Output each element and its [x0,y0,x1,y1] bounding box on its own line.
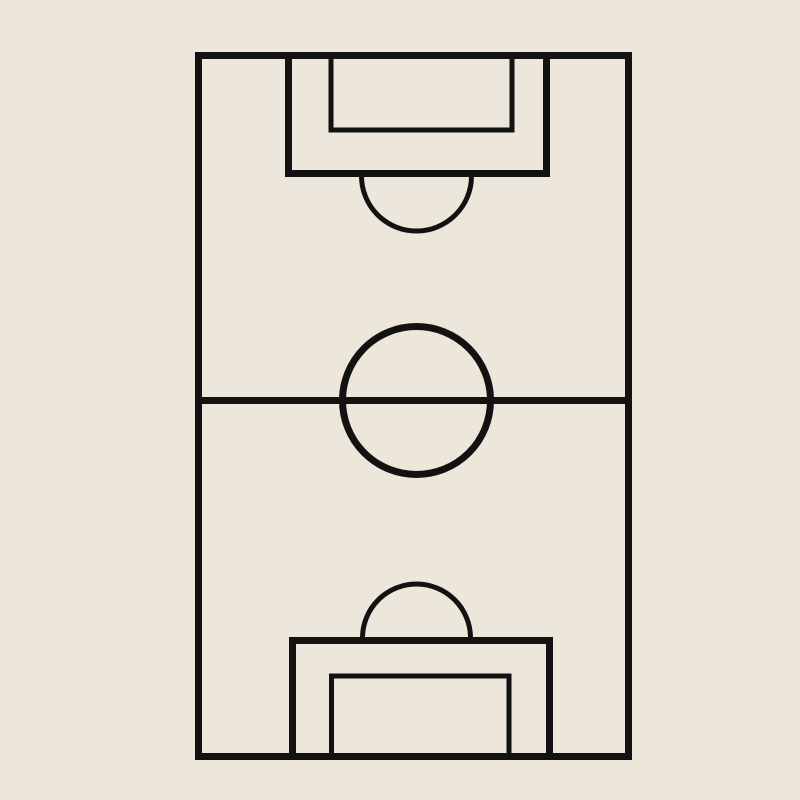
pitch-diagram-canvas [0,0,800,800]
bottom-penalty-arc [363,584,471,638]
pitch-outline [199,56,629,757]
bottom-goal-area [332,676,510,757]
top-penalty-arc [362,176,472,231]
top-goal-area [331,52,512,130]
football-pitch-diagram [0,0,800,800]
top-penalty-area [289,52,547,174]
